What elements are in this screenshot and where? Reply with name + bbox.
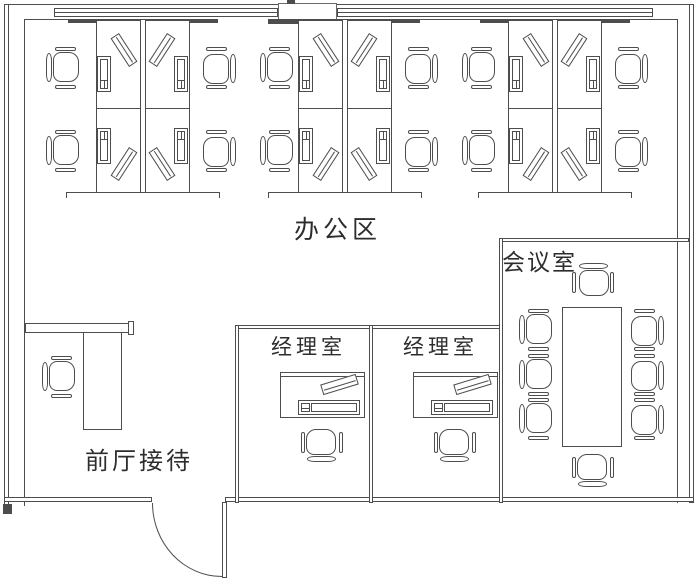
partition-screen: [68, 20, 96, 23]
top-wall-column: [278, 3, 337, 20]
computer-icon: [376, 56, 390, 92]
workstation-pod: [508, 20, 602, 193]
conference-chair: [626, 356, 664, 394]
exterior-wall-right: [689, 4, 694, 503]
exterior-wall-bottom-left: [4, 497, 152, 502]
computer-icon: [174, 128, 188, 164]
meeting-room-label: 会议室: [502, 243, 577, 277]
computer-icon: [299, 128, 313, 164]
office-chair: [462, 49, 500, 87]
partition-screen: [480, 20, 508, 23]
partition-screen: [190, 20, 218, 23]
manager-room1-left-wall: [235, 325, 239, 503]
floor-plan: 办公区 会议室 经理室 经理室 前厅接待: [0, 0, 700, 582]
pod-screen-line: [268, 192, 422, 198]
pod-screen-line: [478, 192, 632, 198]
computer-icon: [299, 56, 313, 92]
entry-door-leaf: [222, 502, 227, 578]
office-chair: [46, 49, 84, 87]
conference-chair: [626, 400, 664, 438]
entry-door-swing-arc: [152, 503, 222, 577]
meeting-room-left-wall: [499, 238, 503, 503]
conference-chair: [519, 400, 557, 438]
exterior-wall-left: [4, 4, 9, 508]
conference-chair: [574, 263, 612, 301]
partition-screen: [392, 20, 420, 23]
top-wall-marker: [287, 0, 295, 4]
reception-desk: [83, 332, 122, 430]
office-chair: [400, 49, 438, 87]
computer-icon: [509, 56, 523, 92]
office-chair: [400, 132, 438, 170]
computer-icon: [586, 128, 600, 164]
pod-screen-line: [66, 192, 220, 198]
computer-icon: [431, 400, 493, 415]
reception-counter-cap: [128, 321, 134, 335]
meeting-room-top-wall: [499, 238, 689, 242]
conference-chair: [574, 449, 612, 487]
computer-icon: [298, 400, 360, 415]
office-chair: [610, 132, 648, 170]
office-chair: [46, 132, 84, 170]
workstation-pod: [96, 20, 190, 193]
conference-chair: [519, 311, 557, 349]
reception-chair: [42, 358, 80, 396]
partition-screen: [602, 20, 630, 23]
computer-icon: [97, 56, 111, 92]
window-band-right: [337, 8, 653, 17]
exterior-wall-bottom-right: [225, 497, 694, 502]
manager-chair: [303, 424, 341, 462]
right-inner-wall-line: [677, 19, 678, 503]
manager-room1-label: 经理室: [271, 331, 346, 361]
office-chair: [260, 49, 298, 87]
conference-chair: [626, 311, 664, 349]
manager-room2-label: 经理室: [403, 331, 478, 361]
left-inner-wall-line: [24, 19, 25, 506]
computer-icon: [376, 128, 390, 164]
window-band-left: [54, 8, 278, 17]
office-chair: [198, 49, 236, 87]
computer-icon: [509, 128, 523, 164]
exterior-wall-top: [4, 4, 694, 5]
conference-chair: [519, 356, 557, 394]
office-area-label: 办公区: [294, 210, 381, 246]
office-chair: [610, 49, 648, 87]
manager-rooms-divider-wall: [369, 325, 373, 503]
computer-icon: [97, 128, 111, 164]
office-chair: [198, 132, 236, 170]
computer-icon: [586, 56, 600, 92]
office-chair: [260, 132, 298, 170]
computer-icon: [174, 56, 188, 92]
workstation-pod: [298, 20, 392, 193]
manager-chair: [436, 424, 474, 462]
office-chair: [462, 132, 500, 170]
conference-table: [562, 307, 622, 447]
wall-end-cap: [3, 504, 12, 514]
reception-label: 前厅接待: [85, 441, 193, 476]
